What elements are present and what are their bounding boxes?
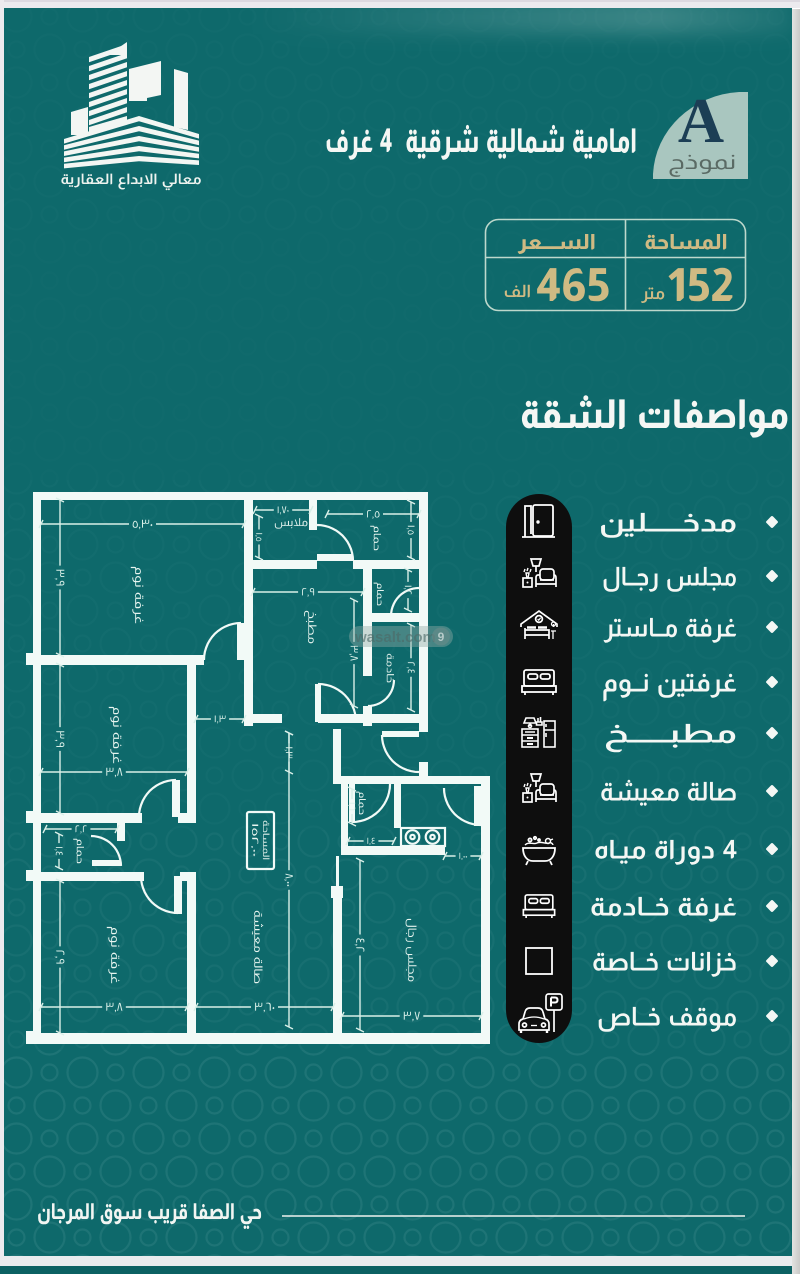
svg-text:9: 9 xyxy=(438,630,445,644)
svg-text:wasalt.com: wasalt.com xyxy=(354,629,436,646)
svg-text:A: A xyxy=(678,85,724,156)
